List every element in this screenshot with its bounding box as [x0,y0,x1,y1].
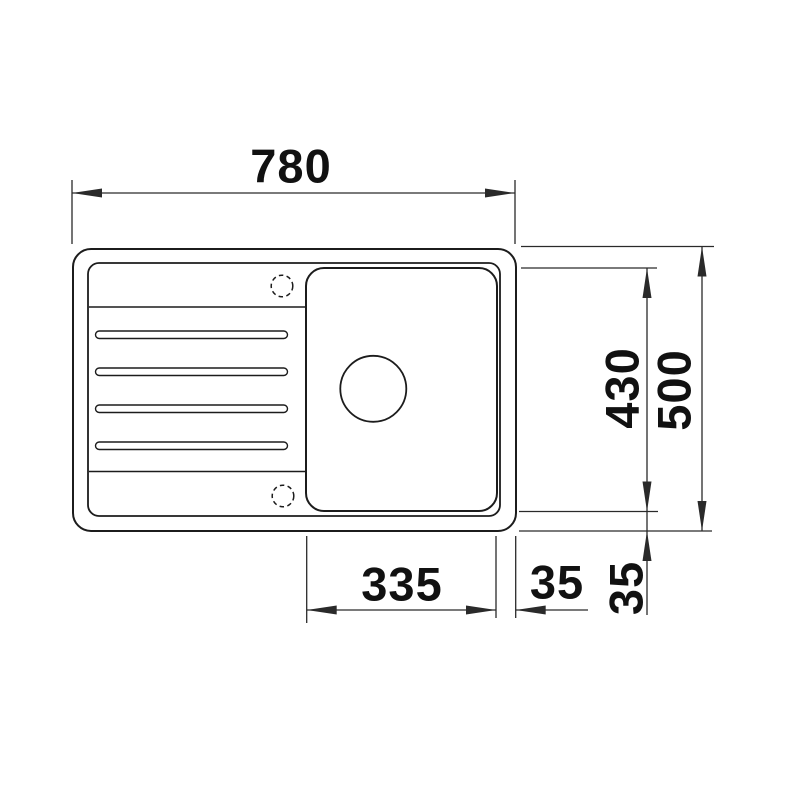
arrowhead-down [698,501,707,531]
drainboard-groove [96,405,288,413]
drainboard-grooves [96,331,288,450]
arrowhead-down [643,482,652,512]
arrowhead-up [643,531,652,561]
dimension-label-bowl-depth: 430 [599,347,646,428]
arrowhead-up [643,268,652,298]
drainboard-groove [96,331,288,339]
dimension-label-overall-width: 780 [250,143,331,190]
arrowhead-left [307,606,337,615]
dimension-label-bowl-right-offset: 35 [530,559,584,606]
sink-body [73,249,516,531]
drainboard-groove [96,442,288,450]
dimension-label-bowl-bottom-offset: 35 [603,561,650,615]
tap-hole-bottom [272,485,294,507]
tap-hole-top [271,275,293,297]
arrowhead-left [72,189,102,198]
arrowhead-right [466,606,496,615]
arrowhead-right [485,189,515,198]
arrowhead-up [698,247,707,277]
sink-rim-inner-edge [88,263,500,516]
sink-technical-drawing: 780 430 500 335 35 35 [0,0,800,800]
drain-hole [340,356,406,422]
sink-bowl [306,268,497,511]
drainboard-groove [96,368,288,376]
dimension-label-bowl-width: 335 [361,561,442,608]
sink-outer-edge [73,249,516,531]
dimension-label-overall-depth: 500 [651,349,698,430]
